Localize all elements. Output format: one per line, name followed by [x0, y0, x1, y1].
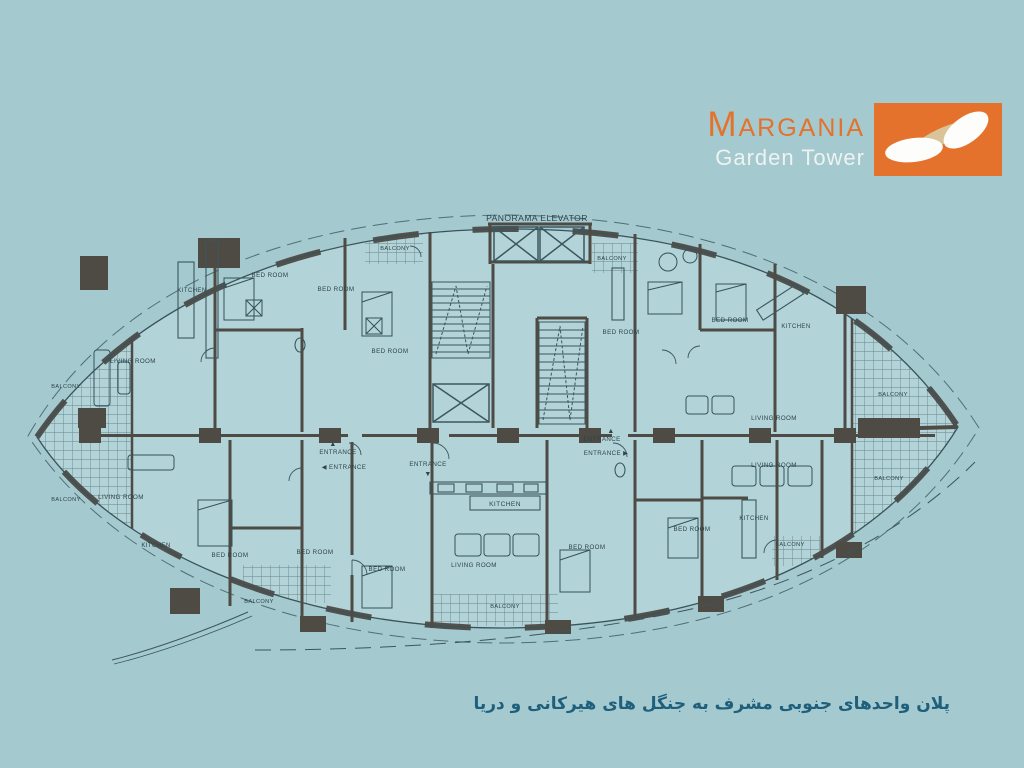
room-label: BALCONY: [51, 384, 81, 390]
room-label: ENTRANCE: [583, 436, 620, 443]
room-label: ◀ ENTRANCE: [322, 464, 367, 471]
room-label: KITCHEN: [177, 288, 206, 294]
room-label: BALCONY: [490, 604, 520, 610]
room-label: LIVING ROOM: [751, 415, 797, 422]
room-label: BED ROOM: [212, 552, 249, 559]
brand-text: Margania Garden Tower: [707, 103, 865, 170]
twin-leaf-mark-icon: [874, 103, 1002, 176]
room-label: KITCHEN: [141, 543, 170, 549]
room-label: ▼: [424, 471, 431, 478]
room-label: BALCONY: [874, 476, 904, 482]
brand-block: Margania Garden Tower: [707, 103, 1002, 176]
room-label: BED ROOM: [369, 566, 406, 573]
room-label: ENTRANCE ▶: [584, 450, 629, 457]
brand-title: Margania: [707, 107, 865, 142]
room-label: LIVING ROOM: [110, 358, 156, 365]
room-label: ENTRANCE: [319, 449, 356, 456]
room-label: BED ROOM: [252, 272, 289, 279]
room-label: BALCONY: [380, 246, 410, 252]
room-label: LIVING ROOM: [98, 494, 144, 501]
room-label: BED ROOM: [297, 549, 334, 556]
room-label: BED ROOM: [569, 544, 606, 551]
room-label: BED ROOM: [674, 526, 711, 533]
caption-text: پلان واحدهای جنوبی مشرف به جنگل های هیرک…: [473, 694, 950, 714]
room-label: ▲: [329, 441, 336, 448]
room-label: BED ROOM: [318, 286, 355, 293]
room-label: LIVING ROOM: [451, 562, 497, 569]
room-label: KITCHEN: [781, 324, 810, 330]
room-label: BALCONY: [775, 542, 805, 548]
room-label: ▲: [607, 428, 614, 435]
room-label: ENTRANCE: [409, 461, 446, 468]
room-label: BALCONY: [244, 599, 274, 605]
room-label: BALCONY: [51, 497, 81, 503]
room-label: BED ROOM: [712, 317, 749, 324]
room-label: BALCONY: [878, 392, 908, 398]
room-label: BED ROOM: [603, 329, 640, 336]
room-label: BED ROOM: [372, 348, 409, 355]
brand-subtitle: Garden Tower: [715, 146, 865, 170]
slide: { "page": { "background": "#a4c9cf" }, "…: [0, 0, 1024, 768]
room-label: PANORAMA ELEVATOR: [486, 213, 588, 223]
room-label: KITCHEN: [739, 516, 768, 522]
tip-wall: [920, 427, 957, 428]
room-label: LIVING ROOM: [751, 462, 797, 469]
room-label: BALCONY: [597, 256, 627, 262]
room-label: KITCHEN: [489, 501, 521, 508]
